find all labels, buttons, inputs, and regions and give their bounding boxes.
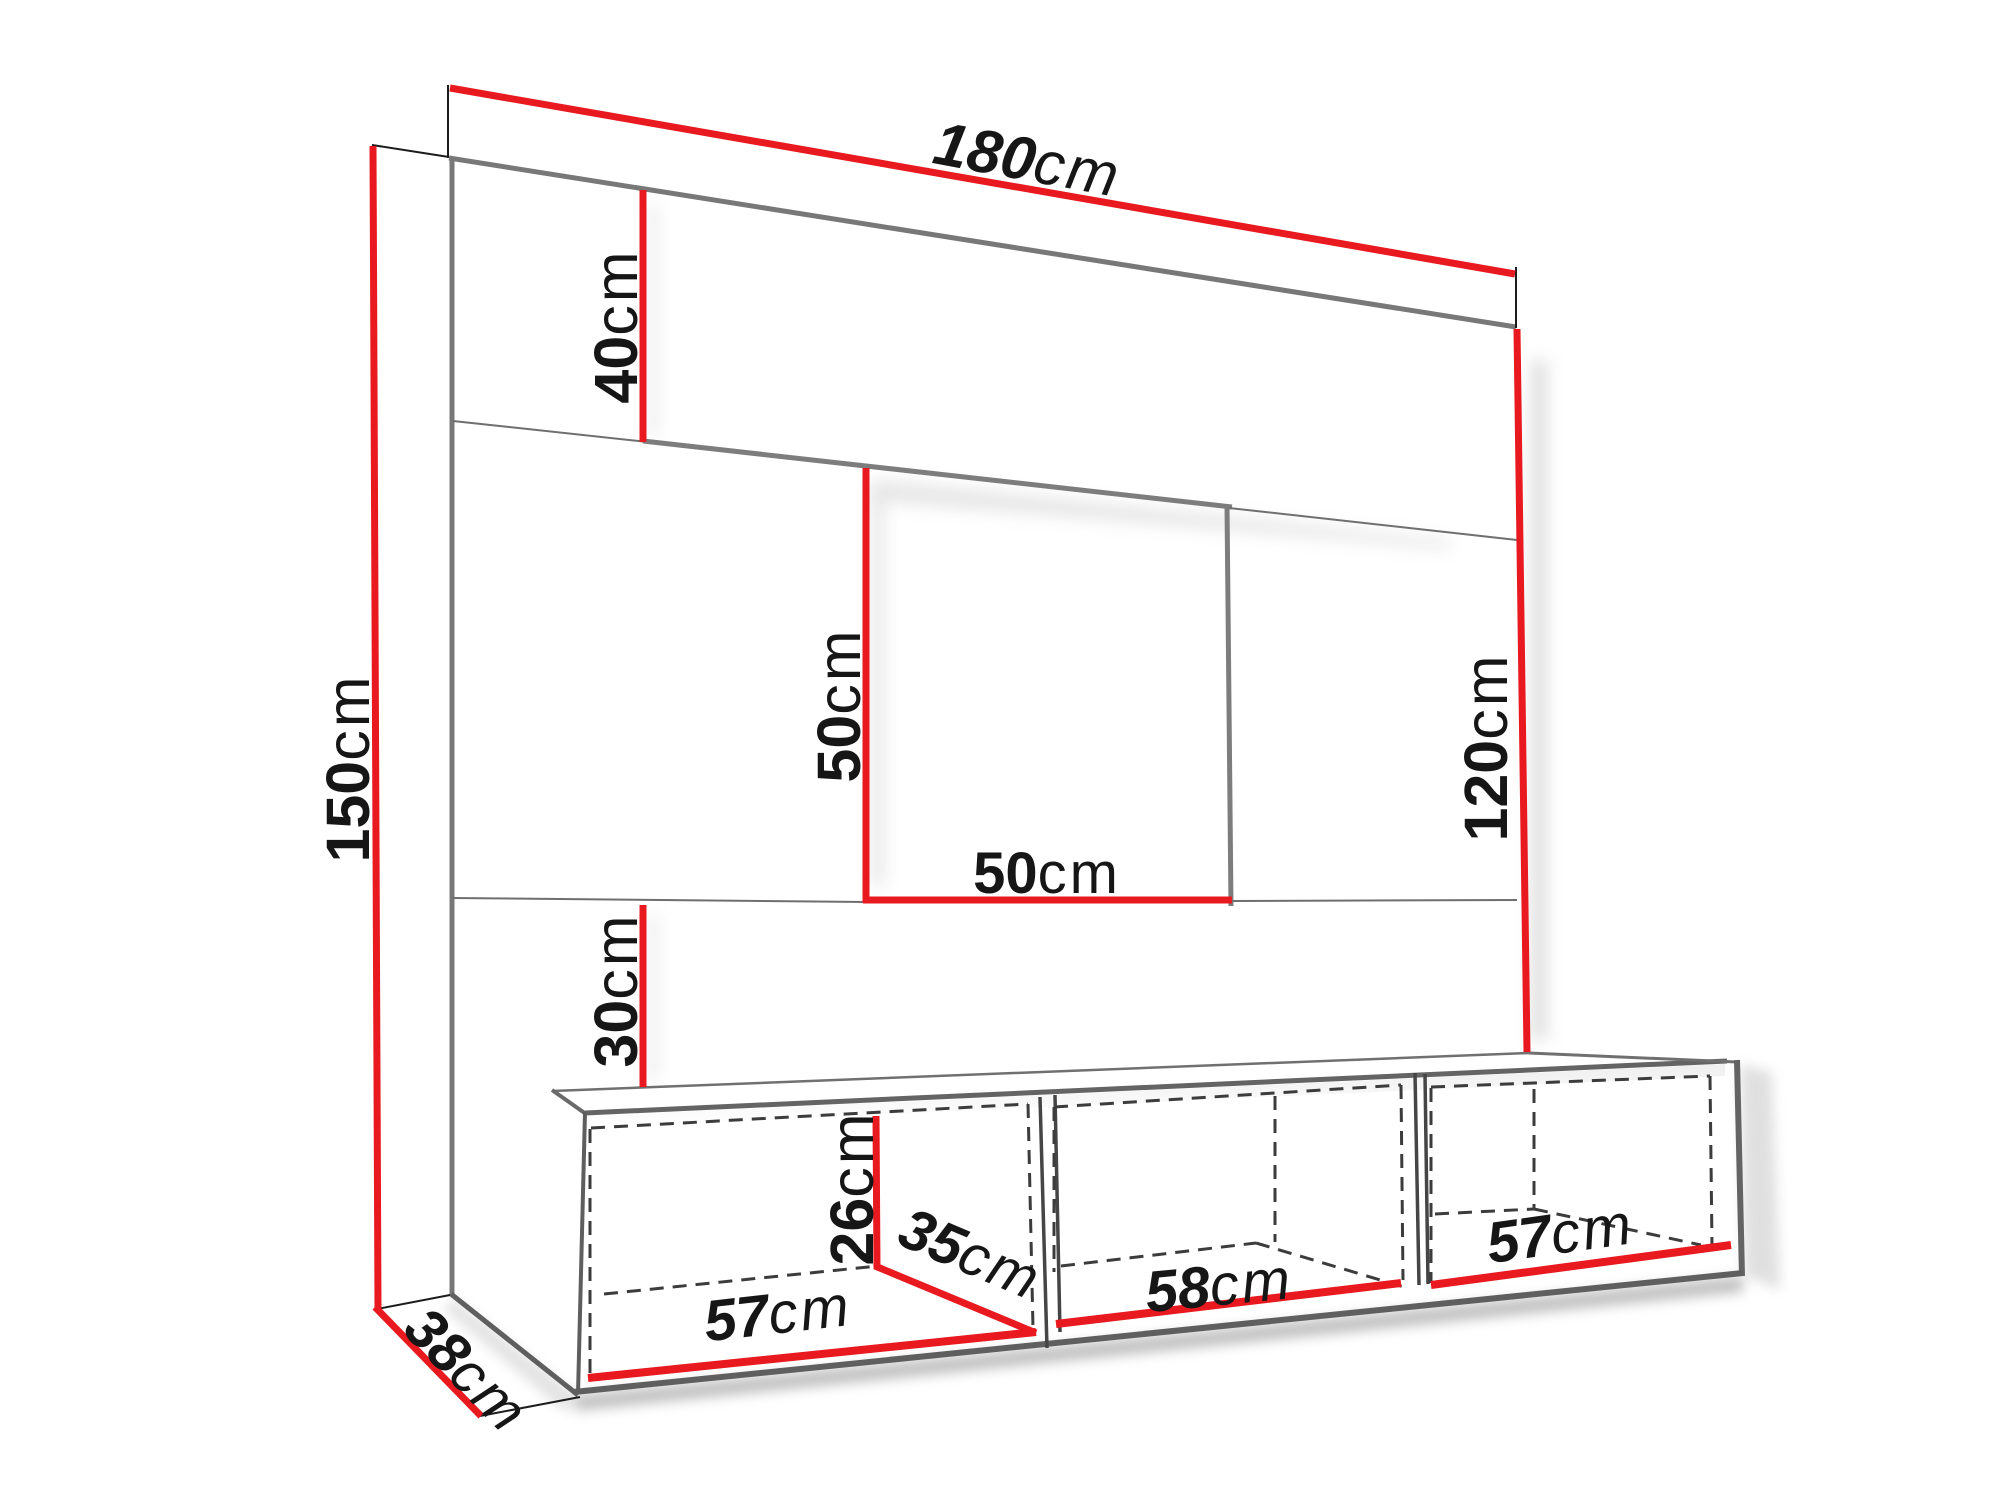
svg-text:40cm: 40cm: [582, 248, 650, 403]
svg-text:26cm: 26cm: [818, 1110, 886, 1265]
svg-text:50cm: 50cm: [805, 627, 873, 782]
svg-text:50cm: 50cm: [973, 841, 1121, 906]
svg-text:30cm: 30cm: [582, 912, 650, 1067]
svg-text:120cm: 120cm: [1452, 652, 1520, 841]
svg-text:150cm: 150cm: [314, 673, 382, 862]
